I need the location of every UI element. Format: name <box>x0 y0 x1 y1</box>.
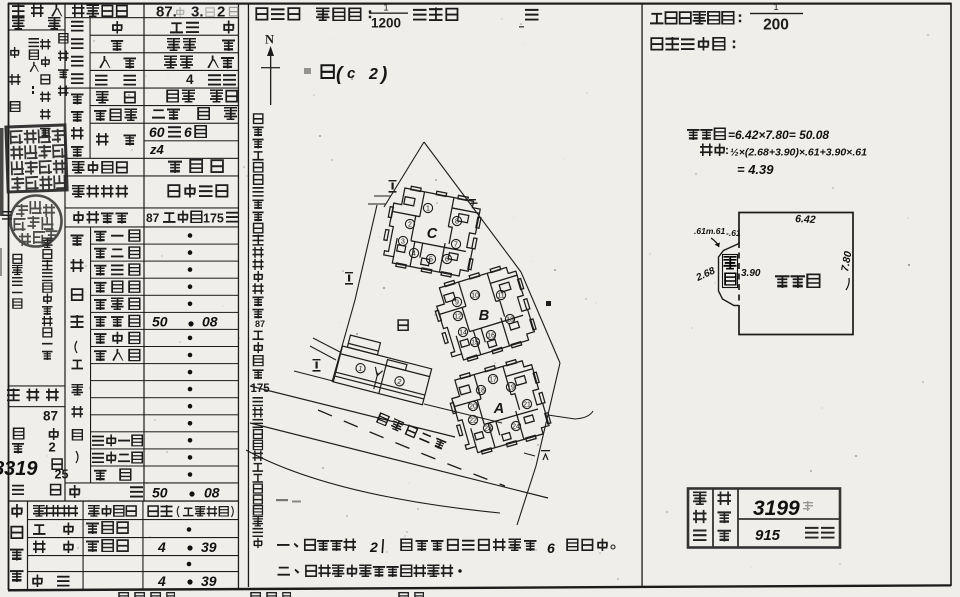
svg-text:½×(2.68+3.90)×.61+3.90×.61: ½×(2.68+3.90)×.61+3.90×.61 <box>730 147 867 159</box>
svg-text:6: 6 <box>184 124 192 140</box>
svg-text:20: 20 <box>469 404 477 411</box>
svg-text:9: 9 <box>455 300 459 307</box>
svg-text:= 4.39: = 4.39 <box>737 162 774 177</box>
svg-text:13: 13 <box>506 317 514 324</box>
svg-text:B: B <box>479 308 489 324</box>
svg-text:39: 39 <box>201 539 217 555</box>
svg-text:N: N <box>265 33 274 47</box>
svg-text:2.68: 2.68 <box>694 265 718 284</box>
svg-text:17: 17 <box>489 377 497 384</box>
svg-text:(: ( <box>336 64 345 85</box>
svg-text:50: 50 <box>152 313 168 329</box>
svg-text:3.: 3. <box>191 4 204 21</box>
svg-text:14: 14 <box>459 330 467 337</box>
svg-text:8319: 8319 <box>0 458 38 480</box>
svg-text:915: 915 <box>755 527 781 544</box>
svg-text:3: 3 <box>401 239 405 246</box>
svg-text:6: 6 <box>547 540 555 556</box>
svg-text:6.42: 6.42 <box>795 213 816 226</box>
svg-text:=6.42×7.80= 50.08: =6.42×7.80= 50.08 <box>728 128 829 142</box>
svg-text::: : <box>725 143 729 157</box>
svg-text:5: 5 <box>429 257 433 264</box>
svg-text:175: 175 <box>203 212 224 226</box>
svg-text:4: 4 <box>157 573 166 589</box>
svg-text:4: 4 <box>186 72 194 87</box>
svg-text:1: 1 <box>773 2 778 13</box>
svg-text:2: 2 <box>368 66 378 83</box>
svg-text:19: 19 <box>507 385 515 392</box>
svg-text:21: 21 <box>523 402 531 409</box>
svg-text:24: 24 <box>512 424 520 431</box>
svg-text:15: 15 <box>471 340 479 347</box>
svg-text:87: 87 <box>43 409 58 424</box>
svg-text:4: 4 <box>157 539 166 555</box>
svg-text:.61m.61: .61m.61 <box>694 226 725 236</box>
svg-text:11: 11 <box>497 293 504 300</box>
svg-text:2: 2 <box>217 4 225 21</box>
svg-text:4: 4 <box>412 251 416 258</box>
svg-text:39: 39 <box>201 573 217 589</box>
svg-text:2: 2 <box>408 222 412 229</box>
svg-text:87: 87 <box>146 211 160 225</box>
svg-text:3199: 3199 <box>753 497 800 520</box>
svg-text:18: 18 <box>477 388 485 395</box>
svg-text:1200: 1200 <box>371 16 401 31</box>
svg-text:): ) <box>379 64 387 85</box>
svg-text:25: 25 <box>55 468 69 482</box>
svg-text:1: 1 <box>426 206 430 213</box>
svg-text:2: 2 <box>369 539 378 555</box>
svg-text:C: C <box>427 226 438 242</box>
svg-text:87.: 87. <box>156 4 177 21</box>
svg-text:7: 7 <box>454 242 458 249</box>
svg-text:08: 08 <box>202 313 218 329</box>
svg-text:60: 60 <box>149 124 165 140</box>
svg-text:12: 12 <box>454 314 462 321</box>
svg-text:-.61: -.61 <box>726 228 741 238</box>
svg-text:8: 8 <box>455 219 459 226</box>
svg-text:87: 87 <box>255 319 265 329</box>
svg-text:23: 23 <box>484 426 492 433</box>
svg-text:200: 200 <box>763 17 789 34</box>
svg-text:16: 16 <box>487 333 495 340</box>
svg-text:50: 50 <box>152 485 168 501</box>
svg-text:z4: z4 <box>149 142 165 157</box>
svg-text:10: 10 <box>471 293 479 300</box>
svg-text:22: 22 <box>469 418 477 425</box>
svg-text:3.90: 3.90 <box>741 268 761 279</box>
svg-text:2: 2 <box>49 440 56 455</box>
svg-text:08: 08 <box>204 485 220 501</box>
svg-text:1: 1 <box>383 3 388 14</box>
svg-text:6: 6 <box>445 257 449 264</box>
svg-text:A: A <box>493 401 504 417</box>
